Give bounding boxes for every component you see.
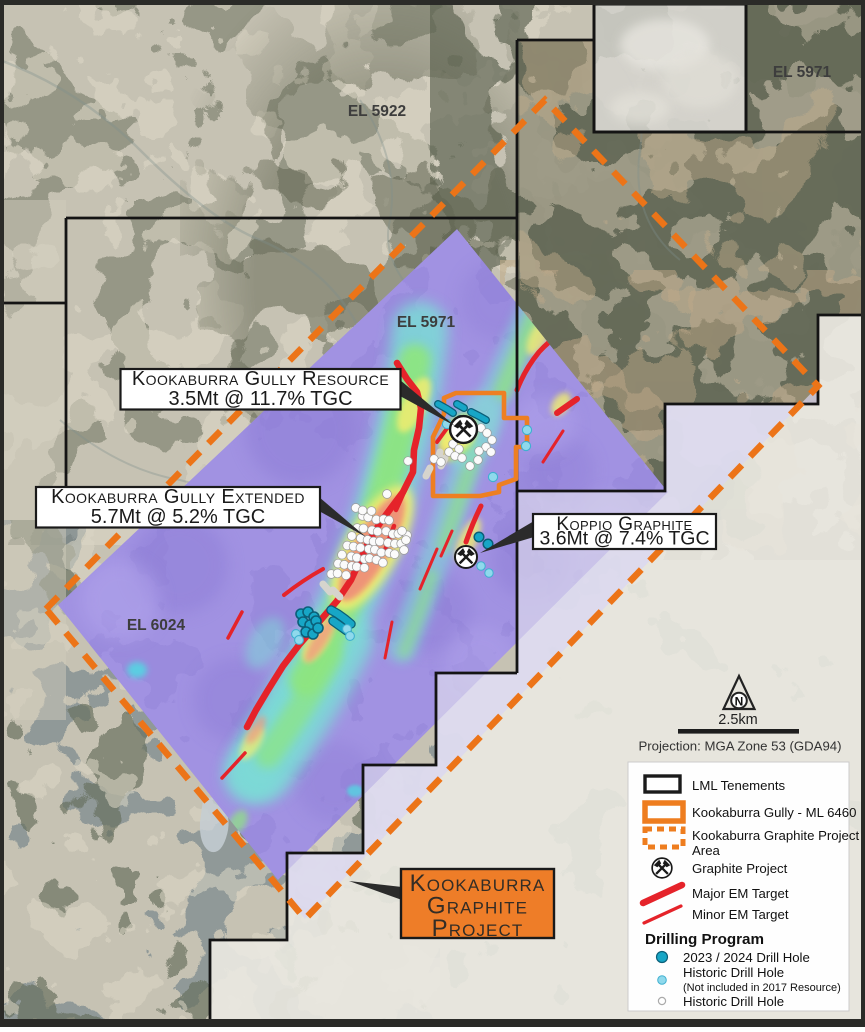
- svg-text:Historic Drill Hole: Historic Drill Hole: [683, 965, 784, 980]
- svg-text:5.7Mt @ 5.2% TGC: 5.7Mt @ 5.2% TGC: [91, 506, 265, 528]
- svg-text:2.5km: 2.5km: [718, 712, 758, 728]
- svg-text:Minor EM Target: Minor EM Target: [692, 907, 789, 922]
- svg-text:EL 5971: EL 5971: [773, 64, 832, 81]
- svg-text:3.5Mt @ 11.7% TGC: 3.5Mt @ 11.7% TGC: [168, 388, 352, 410]
- svg-text:N: N: [735, 695, 744, 709]
- svg-text:Major EM Target: Major EM Target: [692, 886, 789, 901]
- svg-text:Kookaburra Gully Extended: Kookaburra Gully Extended: [51, 486, 305, 508]
- svg-text:Area: Area: [692, 843, 721, 858]
- svg-text:3.6Mt @ 7.4% TGC: 3.6Mt @ 7.4% TGC: [539, 528, 709, 550]
- svg-text:2023 / 2024 Drill Hole: 2023 / 2024 Drill Hole: [683, 950, 810, 965]
- svg-text:Kookaburra Gully - ML 6460: Kookaburra Gully - ML 6460: [692, 805, 856, 820]
- svg-text:Historic Drill Hole: Historic Drill Hole: [683, 994, 784, 1009]
- svg-text:(Not included in 2017 Resource: (Not included in 2017 Resource): [683, 982, 841, 994]
- svg-text:Project: Project: [432, 915, 524, 942]
- svg-text:Graphite Project: Graphite Project: [692, 861, 788, 876]
- svg-text:Projection: MGA Zone 53 (GDA94: Projection: MGA Zone 53 (GDA94): [638, 739, 841, 754]
- svg-text:Kookaburra Graphite Project: Kookaburra Graphite Project: [692, 828, 859, 843]
- svg-text:Drilling Program: Drilling Program: [645, 931, 764, 948]
- svg-text:LML Tenements: LML Tenements: [692, 778, 786, 793]
- svg-text:EL 5922: EL 5922: [348, 103, 406, 120]
- svg-text:EL 6024: EL 6024: [127, 617, 186, 634]
- svg-text:Kookaburra Gully Resource: Kookaburra Gully Resource: [132, 368, 389, 390]
- svg-text:EL 5971: EL 5971: [397, 314, 456, 331]
